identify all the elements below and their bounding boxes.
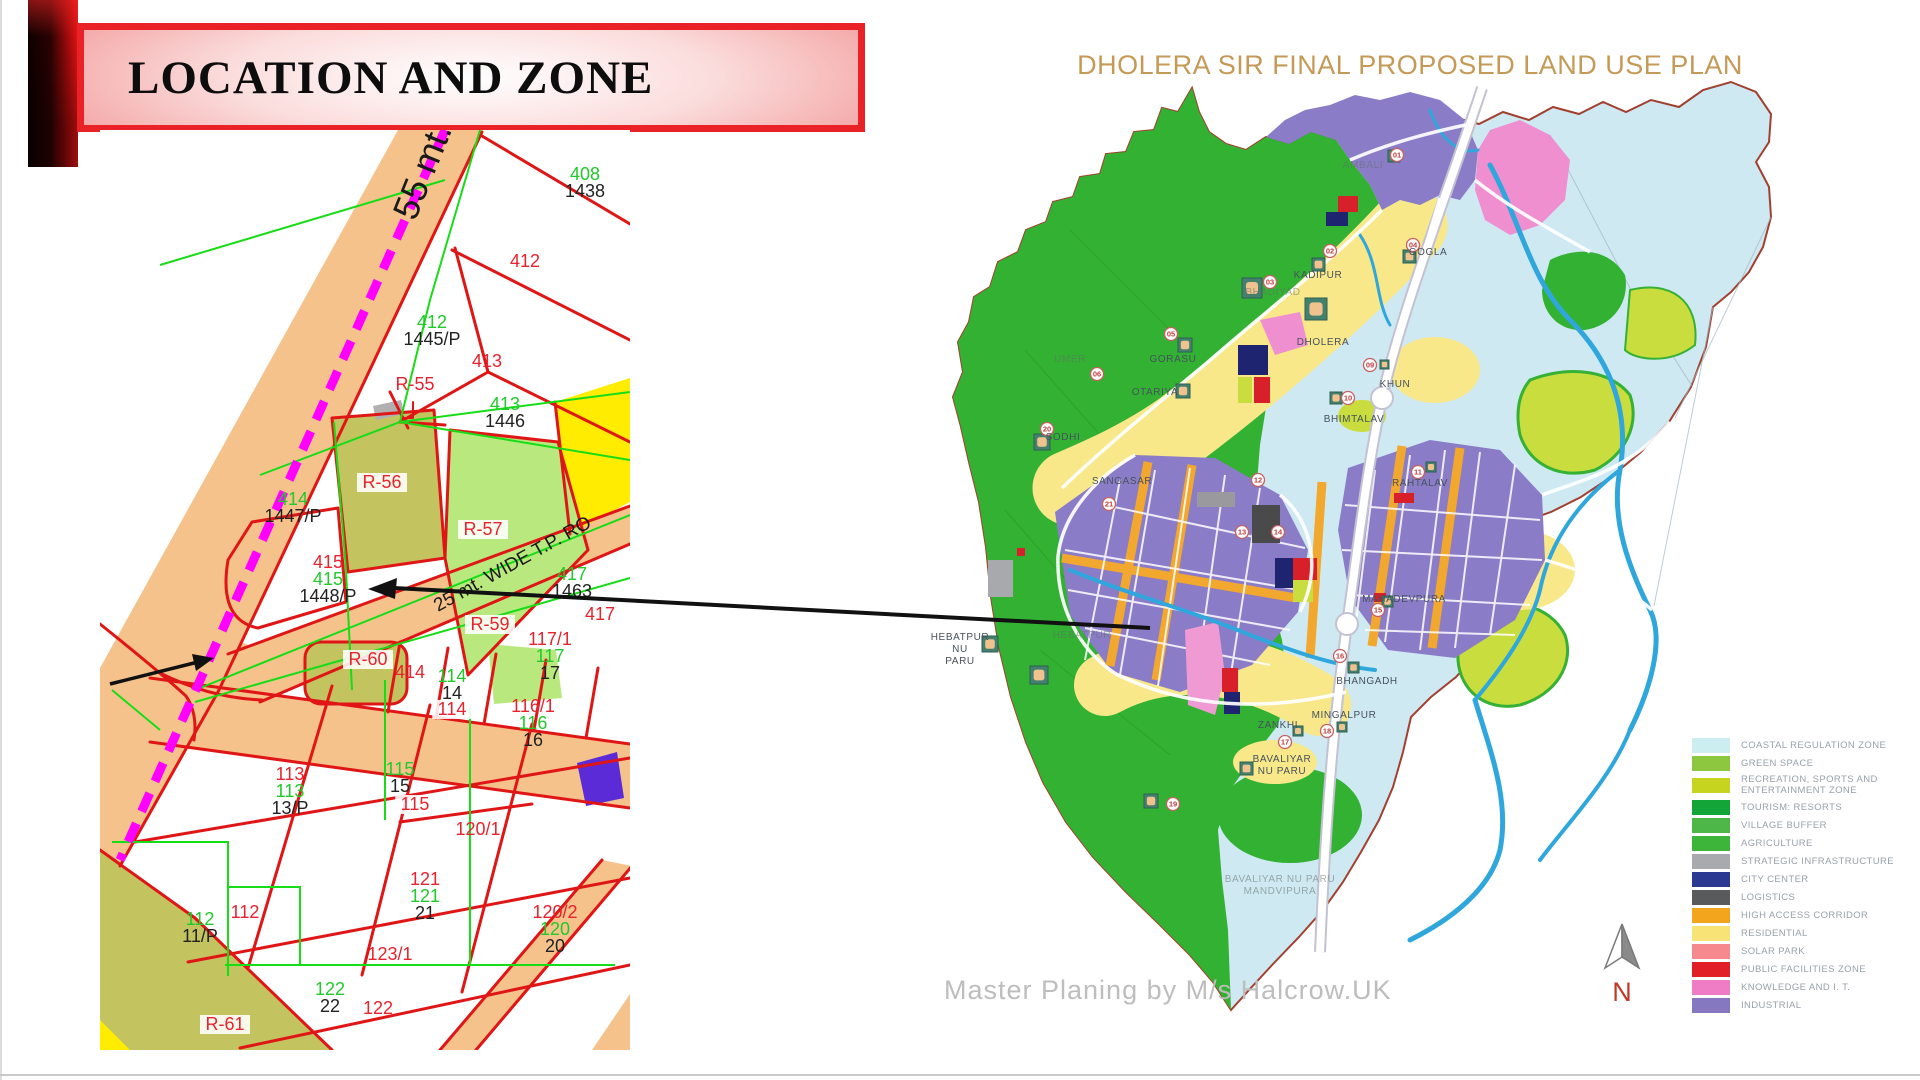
legend-swatch (1692, 908, 1730, 923)
parcel-label: 4171463 (552, 564, 592, 601)
village-label: MINGALPUR (1312, 710, 1377, 721)
north-arrow: N (1592, 922, 1652, 1008)
village-label: MANDVIPURA (1244, 886, 1317, 897)
landuse-plan-panel: DHOLERA SIR FINAL PROPOSED LAND USE PLAN (930, 50, 1920, 1080)
svg-text:412: 412 (510, 251, 540, 271)
north-arrow-icon (1600, 922, 1644, 974)
parcel-label: 4131446 (485, 394, 525, 431)
svg-text:1463: 1463 (552, 581, 592, 601)
svg-text:R-60: R-60 (348, 649, 387, 669)
legend-label: HIGH ACCESS CORRIDOR (1741, 910, 1868, 921)
legend-label: AGRICULTURE (1741, 838, 1813, 849)
parcel-label: 122 (363, 998, 393, 1018)
slide-left-edge (0, 0, 2, 1080)
village-label: SANGASAR (1092, 476, 1152, 487)
svg-text:14: 14 (1274, 528, 1283, 537)
parcel-label: 413 (472, 351, 502, 371)
parcel-label: 123/1 (367, 944, 412, 964)
svg-text:01: 01 (1393, 151, 1401, 160)
map-legend: COASTAL REGULATION ZONE GREEN SPACE RECR… (1692, 738, 1920, 1013)
north-label: N (1592, 977, 1652, 1008)
legend-label: LOGISTICS (1741, 892, 1795, 903)
map-attribution: Master Planing by M/s Halcrow.UK (944, 975, 1392, 1006)
parcel-label: 11211/P (182, 909, 218, 946)
village-label: BAVALIYAR NU PARU (1225, 874, 1336, 885)
village-label: OTARIYA (1132, 387, 1179, 398)
svg-text:R-61: R-61 (205, 1014, 244, 1034)
village-label: ZANKHI (1258, 720, 1298, 731)
legend-label: RECREATION, SPORTS AND ENTERTAINMENT ZON… (1741, 774, 1920, 797)
legend-item: GREEN SPACE (1692, 756, 1920, 771)
svg-text:11: 11 (1414, 468, 1422, 477)
village-label: BHADIYAD (1245, 287, 1300, 298)
svg-text:03: 03 (1266, 278, 1274, 287)
svg-text:21: 21 (1105, 500, 1113, 509)
legend-item: CITY CENTER (1692, 872, 1920, 887)
legend-item: HIGH ACCESS CORRIDOR (1692, 908, 1920, 923)
svg-text:R-57: R-57 (463, 519, 502, 539)
svg-text:15: 15 (1374, 606, 1382, 615)
village-label: HEBATPUR (1053, 630, 1112, 641)
legend-label: CITY CENTER (1741, 874, 1809, 885)
legend-swatch (1692, 980, 1730, 995)
village-label: KADIPUR (1294, 270, 1343, 281)
svg-text:R-56: R-56 (362, 472, 401, 492)
svg-text:16: 16 (1336, 652, 1344, 661)
legend-item: COASTAL REGULATION ZONE (1692, 738, 1920, 753)
legend-swatch (1692, 818, 1730, 833)
village-label: SODHI (1046, 432, 1081, 443)
legend-swatch (1692, 926, 1730, 941)
svg-text:1446: 1446 (485, 411, 525, 431)
svg-text:417: 417 (585, 604, 615, 624)
legend-item: KNOWLEDGE AND I. T. (1692, 980, 1920, 995)
legend-label: GREEN SPACE (1741, 758, 1813, 769)
legend-swatch (1692, 778, 1730, 793)
legend-item: AGRICULTURE (1692, 836, 1920, 851)
village-label: NU PARU (1258, 766, 1306, 777)
legend-swatch (1692, 854, 1730, 869)
legend-item: INDUSTRIAL (1692, 998, 1920, 1013)
village-label: GORASU (1150, 354, 1197, 365)
cadastral-zone-map: 40814384124121445/P413R-554131446R-56414… (100, 130, 630, 1050)
village-label: PARU (945, 656, 974, 667)
parcel-label: 114 (432, 699, 472, 719)
parcel-label: 414 (395, 662, 425, 682)
parcel-label: 417 (585, 604, 615, 624)
svg-text:1448/P: 1448/P (299, 586, 356, 606)
svg-text:02: 02 (1326, 247, 1334, 256)
svg-text:1438: 1438 (565, 181, 605, 201)
svg-text:21: 21 (415, 903, 435, 923)
legend-swatch (1692, 872, 1730, 887)
svg-text:114: 114 (438, 699, 467, 719)
village-label: NU (952, 644, 968, 655)
village-label: BHIMTALAV (1324, 414, 1385, 425)
legend-item: TOURISM: RESORTS (1692, 800, 1920, 815)
parcel-label: R-59 (465, 614, 515, 634)
svg-text:R-59: R-59 (470, 614, 509, 634)
village-label: MAHADEVPURA (1362, 594, 1446, 605)
svg-text:414: 414 (395, 662, 425, 682)
village-label: RAHTALAV (1392, 478, 1448, 489)
svg-text:1445/P: 1445/P (403, 329, 460, 349)
parcel-label: R-56 (357, 472, 407, 492)
legend-swatch (1692, 944, 1730, 959)
svg-text:09: 09 (1366, 361, 1374, 370)
legend-swatch (1692, 962, 1730, 977)
parcel-label: R-57 (458, 519, 508, 539)
village-label: GOGLA (1409, 247, 1448, 258)
svg-text:10: 10 (1344, 394, 1352, 403)
parcel-label: R-55 (395, 374, 434, 394)
parcel-label: 412 (510, 251, 540, 271)
legend-label: INDUSTRIAL (1741, 1000, 1801, 1011)
svg-text:22: 22 (320, 996, 340, 1016)
svg-text:120/1: 120/1 (455, 819, 500, 839)
parcel-label: 115 (395, 794, 435, 814)
page-title: LOCATION AND ZONE (128, 51, 653, 105)
legend-item: RESIDENTIAL (1692, 926, 1920, 941)
village-label: AMBALI (1343, 160, 1383, 171)
village-label: UMER (1054, 354, 1086, 365)
svg-text:1447/P: 1447/P (264, 506, 321, 526)
svg-text:15: 15 (390, 776, 410, 796)
svg-text:122: 122 (363, 998, 393, 1018)
svg-text:413: 413 (472, 351, 502, 371)
legend-label: VILLAGE BUFFER (1741, 820, 1827, 831)
svg-text:19: 19 (1169, 800, 1177, 809)
village-label: KHUN (1380, 379, 1411, 390)
svg-text:112: 112 (231, 902, 260, 922)
village-label: BAVALIYAR (1253, 754, 1312, 765)
legend-swatch (1692, 756, 1730, 771)
legend-swatch (1692, 738, 1730, 753)
svg-text:13: 13 (1238, 528, 1246, 537)
svg-text:13/P: 13/P (271, 798, 308, 818)
legend-item: STRATEGIC INFRASTRUCTURE (1692, 854, 1920, 869)
svg-text:R-55: R-55 (395, 374, 434, 394)
village-label: HEBATPUR (931, 632, 990, 643)
legend-swatch (1692, 836, 1730, 851)
legend-label: SOLAR PARK (1741, 946, 1805, 957)
legend-label: TOURISM: RESORTS (1741, 802, 1842, 813)
legend-item: PUBLIC FACILITIES ZONE (1692, 962, 1920, 977)
legend-label: PUBLIC FACILITIES ZONE (1741, 964, 1866, 975)
svg-text:16: 16 (523, 730, 543, 750)
legend-label: COASTAL REGULATION ZONE (1741, 740, 1886, 751)
parcel-label: 11311313/P (271, 764, 308, 818)
svg-text:115: 115 (401, 794, 430, 814)
legend-label: STRATEGIC INFRASTRUCTURE (1741, 856, 1894, 867)
parcel-label: R-60 (343, 649, 393, 669)
svg-text:18: 18 (1323, 727, 1331, 736)
svg-text:17: 17 (1281, 738, 1289, 747)
legend-swatch (1692, 998, 1730, 1013)
legend-item: LOGISTICS (1692, 890, 1920, 905)
svg-text:123/1: 123/1 (367, 944, 412, 964)
svg-text:17: 17 (540, 663, 560, 683)
svg-text:11/P: 11/P (182, 926, 218, 946)
parcel-label: 120/1 (455, 819, 500, 839)
legend-item: RECREATION, SPORTS AND ENTERTAINMENT ZON… (1692, 774, 1920, 797)
legend-swatch (1692, 800, 1730, 815)
legend-item: SOLAR PARK (1692, 944, 1920, 959)
parcel-label: 4081438 (565, 164, 605, 201)
legend-label: RESIDENTIAL (1741, 928, 1808, 939)
svg-text:05: 05 (1167, 330, 1175, 339)
village-label: BHANGADH (1336, 676, 1397, 687)
parcel-label: R-61 (200, 1014, 250, 1034)
svg-text:06: 06 (1093, 370, 1101, 379)
title-ribbon-bar (28, 0, 78, 167)
legend-label: KNOWLEDGE AND I. T. (1741, 982, 1850, 993)
legend-swatch (1692, 890, 1730, 905)
parcel-label: 112 (231, 902, 260, 922)
title-banner: LOCATION AND ZONE (77, 23, 865, 132)
village-label: DHOLERA (1297, 337, 1350, 348)
legend-item: VILLAGE BUFFER (1692, 818, 1920, 833)
svg-text:20: 20 (545, 936, 565, 956)
svg-text:12: 12 (1254, 476, 1262, 485)
